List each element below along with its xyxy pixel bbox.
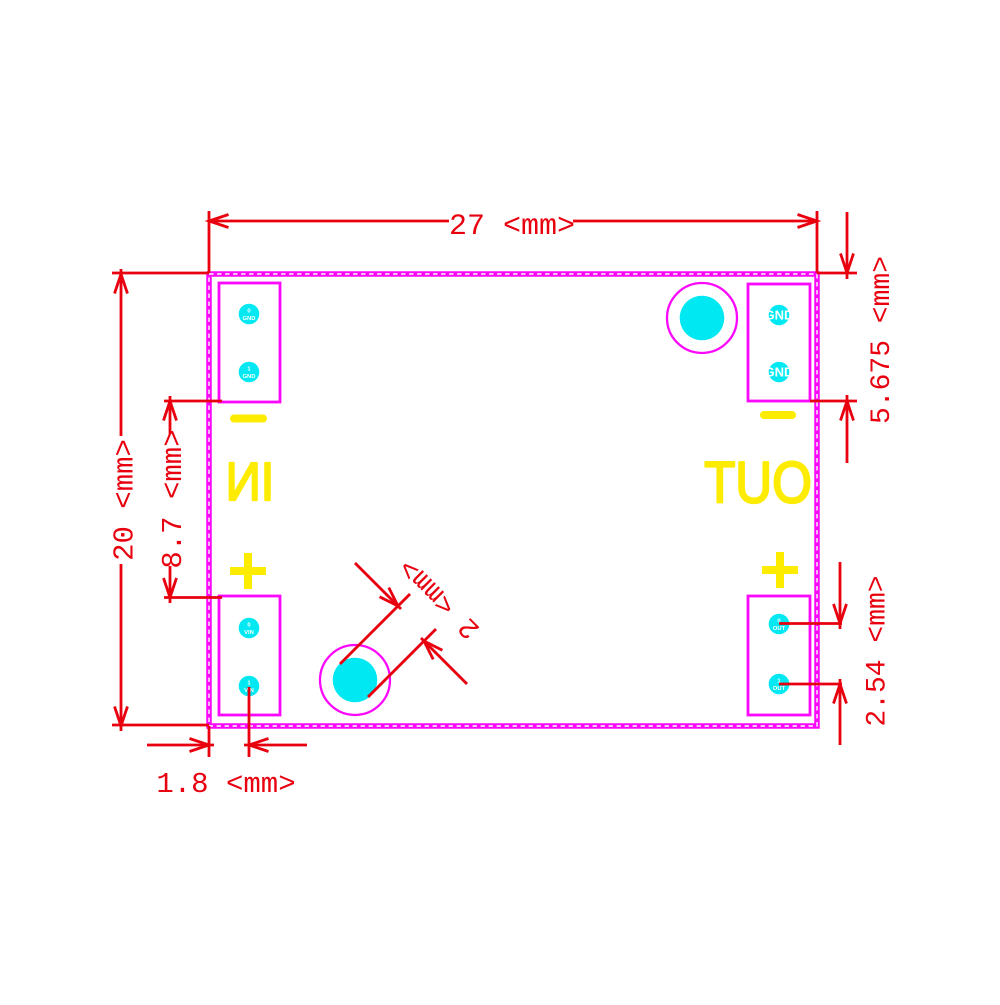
svg-text:OUT: OUT <box>704 450 812 515</box>
svg-text:20 <mm>: 20 <mm> <box>109 439 142 561</box>
svg-text:1.8 <mm>: 1.8 <mm> <box>156 768 295 801</box>
svg-text:GND: GND <box>243 316 256 322</box>
svg-text:0: 0 <box>247 623 250 629</box>
svg-text:IN: IN <box>226 451 275 512</box>
svg-text:2.54 <mm>: 2.54 <mm> <box>863 575 894 726</box>
svg-text:5.675 <mm>: 5.675 <mm> <box>867 256 898 424</box>
svg-text:27 <mm>: 27 <mm> <box>449 210 575 244</box>
svg-text:GND: GND <box>765 365 794 380</box>
svg-text:8.7 <mm>: 8.7 <mm> <box>157 429 190 568</box>
svg-text:OUT: OUT <box>773 686 786 692</box>
svg-text:GND: GND <box>243 374 256 380</box>
svg-text:0: 0 <box>247 309 250 315</box>
svg-text:GND: GND <box>765 308 794 323</box>
svg-text:OUT: OUT <box>773 626 786 632</box>
svg-text:VIN: VIN <box>244 630 254 636</box>
